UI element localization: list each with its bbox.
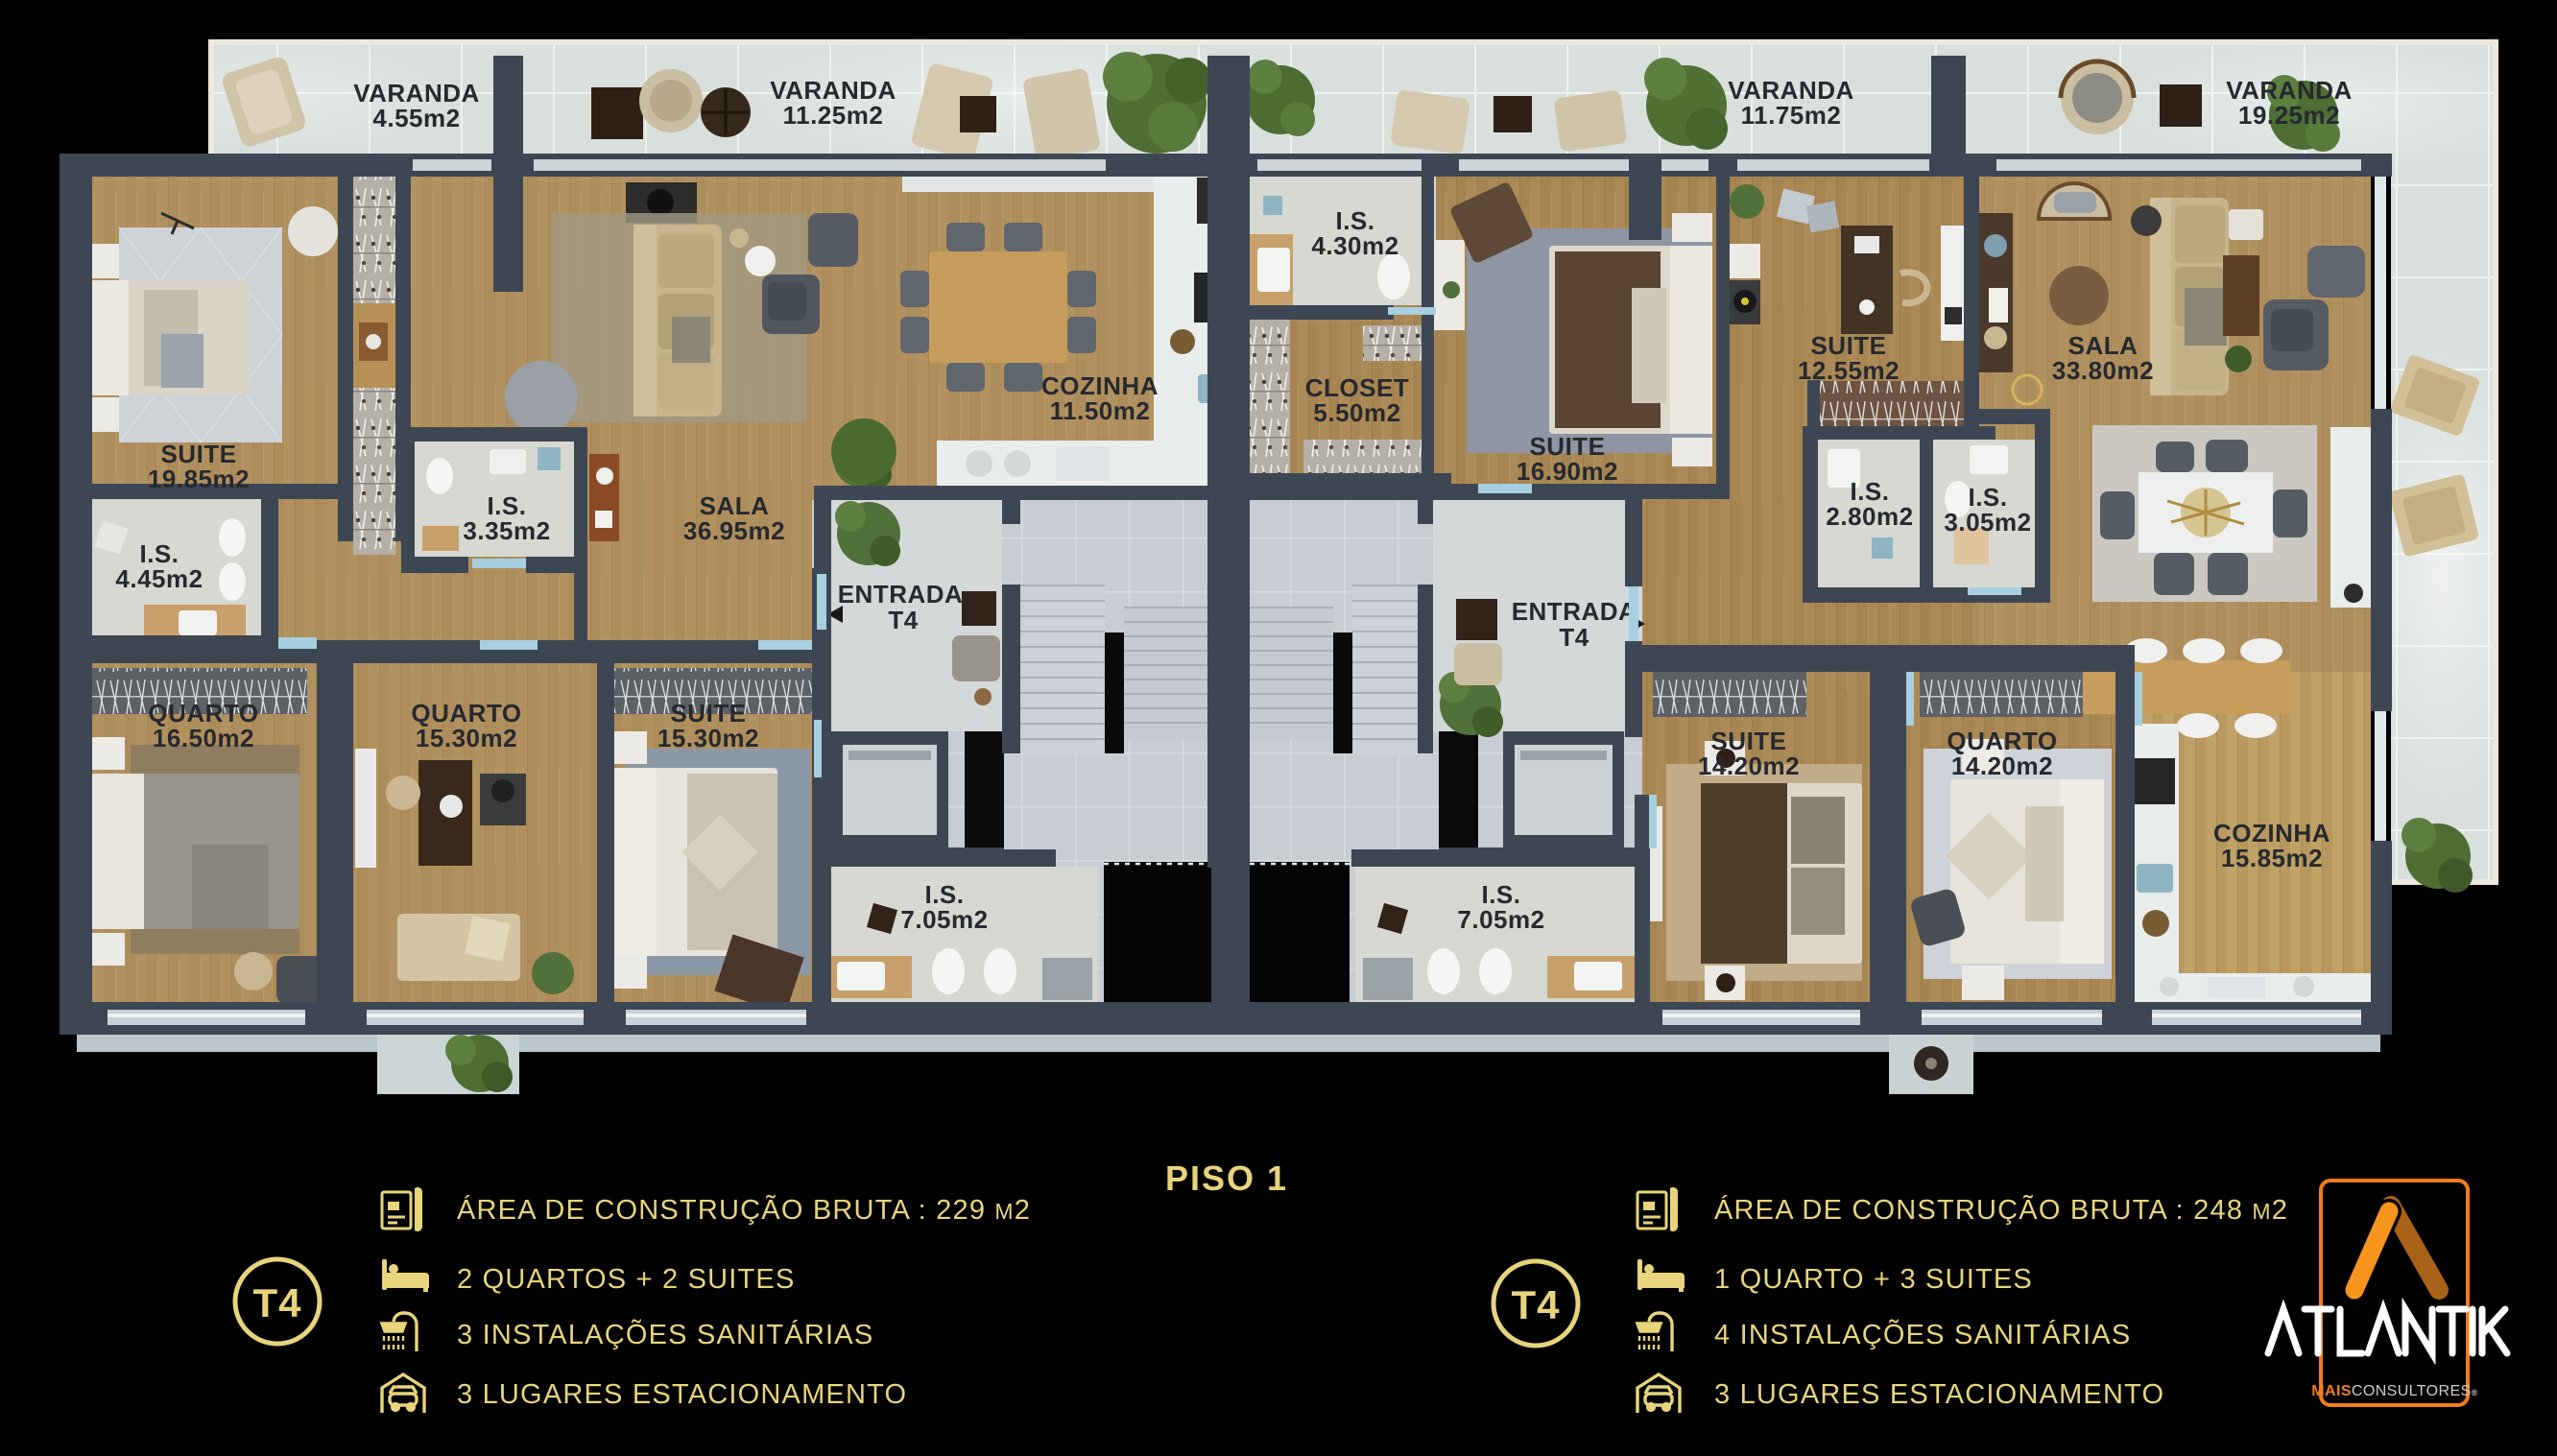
svg-text:14.20m2: 14.20m2 <box>1698 752 1800 780</box>
svg-text:T4: T4 <box>1511 1282 1560 1327</box>
svg-text:19.85m2: 19.85m2 <box>148 465 250 493</box>
svg-text:3 INSTALAÇÕES SANITÁRIAS: 3 INSTALAÇÕES SANITÁRIAS <box>457 1318 873 1350</box>
svg-text:15.30m2: 15.30m2 <box>657 724 759 752</box>
svg-text:3 LUGARES ESTACIONAMENTO: 3 LUGARES ESTACIONAMENTO <box>1714 1379 2164 1410</box>
svg-text:11.75m2: 11.75m2 <box>1741 101 1842 130</box>
svg-text:1 QUARTO + 3 SUITES: 1 QUARTO + 3 SUITES <box>1714 1264 2033 1295</box>
svg-text:ENTRADA: ENTRADA <box>1512 597 1637 626</box>
svg-text:11.50m2: 11.50m2 <box>1050 396 1151 425</box>
svg-text:36.95m2: 36.95m2 <box>683 516 785 545</box>
svg-text:7.05m2: 7.05m2 <box>1457 905 1544 934</box>
svg-text:ÁREA DE CONSTRUÇÃO BRUTA : 24: ÁREA DE CONSTRUÇÃO BRUTA : 248 M2 <box>1714 1193 2288 1226</box>
svg-text:T4: T4 <box>252 1280 301 1325</box>
svg-text:16.90m2: 16.90m2 <box>1517 457 1618 486</box>
svg-text:4.45m2: 4.45m2 <box>115 564 203 593</box>
svg-text:16.50m2: 16.50m2 <box>153 724 254 752</box>
svg-text:4.30m2: 4.30m2 <box>1311 231 1398 260</box>
svg-text:14.20m2: 14.20m2 <box>1951 752 2053 780</box>
svg-text:7.05m2: 7.05m2 <box>900 905 988 934</box>
svg-text:T4: T4 <box>888 606 918 634</box>
svg-text:2 QUARTOS + 2 SUITES: 2 QUARTOS + 2 SUITES <box>457 1264 796 1295</box>
svg-text:PISO 1: PISO 1 <box>1165 1158 1288 1198</box>
svg-text:2.80m2: 2.80m2 <box>1826 502 1913 531</box>
svg-text:ÁREA DE CONSTRUÇÃO BRUTA : 22: ÁREA DE CONSTRUÇÃO BRUTA : 229 M2 <box>457 1193 1031 1226</box>
svg-text:4 INSTALAÇÕES SANITÁRIAS: 4 INSTALAÇÕES SANITÁRIAS <box>1714 1318 2131 1350</box>
svg-text:5.50m2: 5.50m2 <box>1313 398 1400 427</box>
svg-text:33.80m2: 33.80m2 <box>2052 356 2154 385</box>
svg-text:15.85m2: 15.85m2 <box>2221 844 2323 872</box>
svg-text:4.55m2: 4.55m2 <box>372 104 460 132</box>
svg-text:3.05m2: 3.05m2 <box>1944 508 2031 537</box>
svg-text:MAISCONSULTORES®: MAISCONSULTORES® <box>2311 1383 2477 1399</box>
svg-text:3.35m2: 3.35m2 <box>463 516 550 545</box>
svg-text:3 LUGARES ESTACIONAMENTO: 3 LUGARES ESTACIONAMENTO <box>457 1379 907 1410</box>
svg-text:19.25m2: 19.25m2 <box>2238 101 2340 130</box>
svg-text:11.25m2: 11.25m2 <box>783 101 884 130</box>
svg-text:15.30m2: 15.30m2 <box>416 724 517 752</box>
svg-text:T4: T4 <box>1559 623 1589 652</box>
svg-text:ENTRADA: ENTRADA <box>838 580 964 609</box>
svg-text:12.55m2: 12.55m2 <box>1798 356 1900 385</box>
